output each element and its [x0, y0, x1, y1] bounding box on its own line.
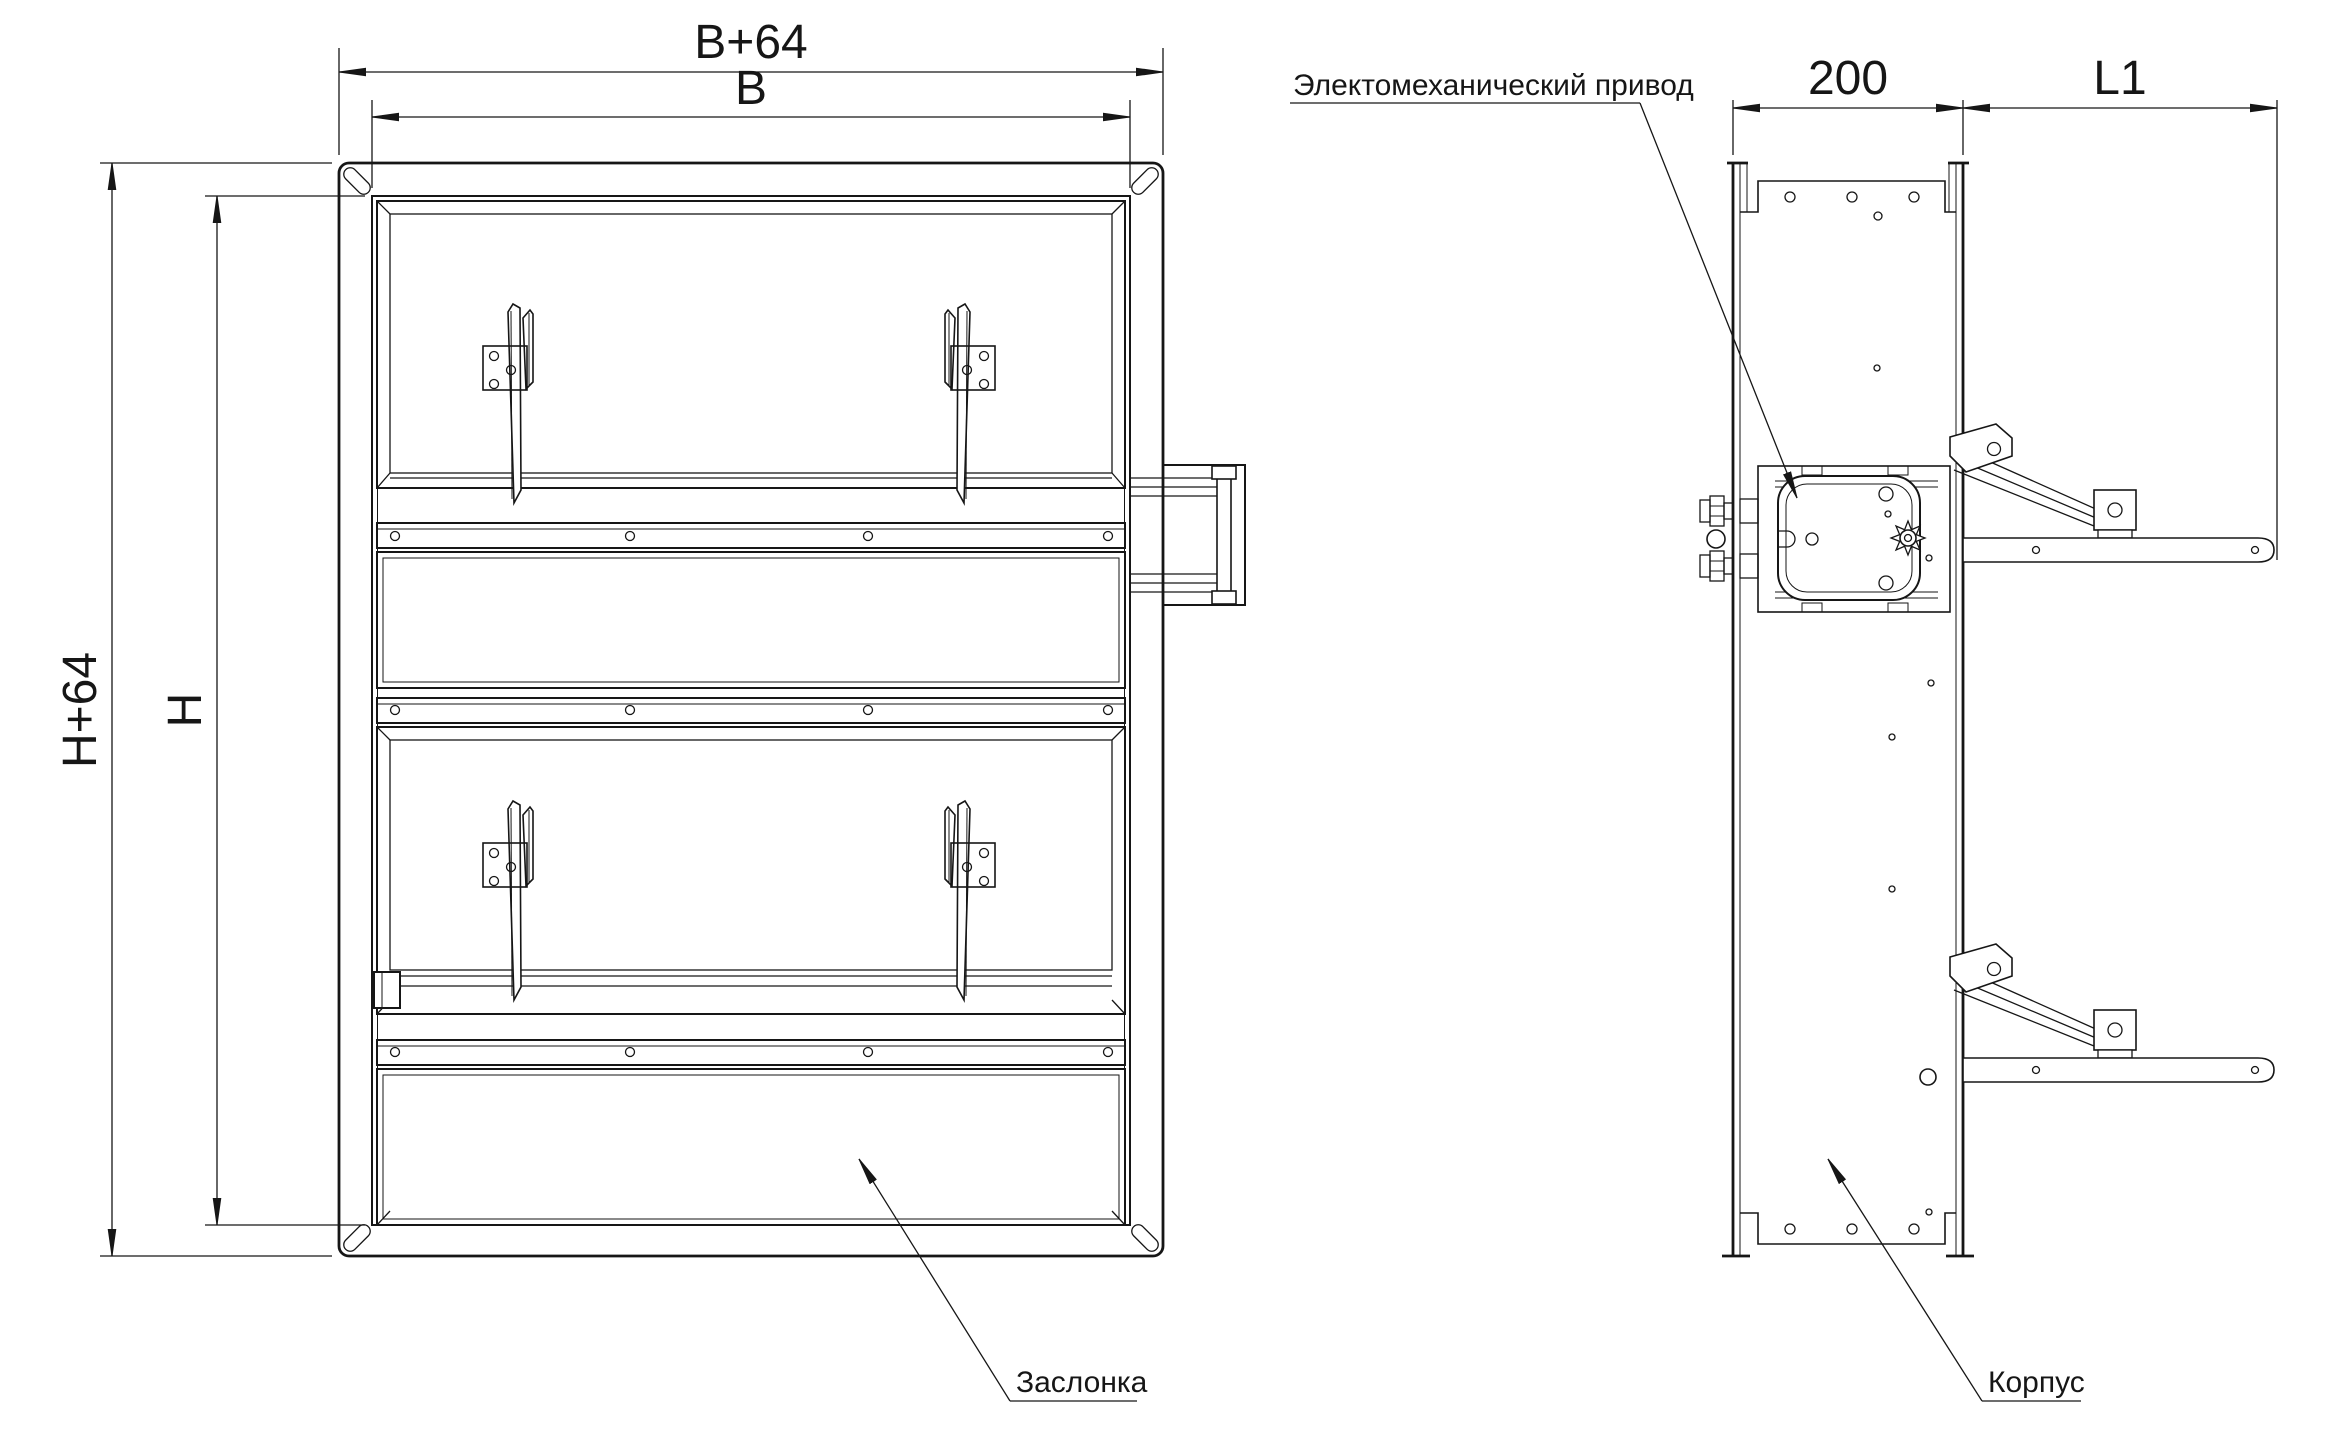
actuator-body	[1778, 476, 1932, 600]
technical-drawing: B+64 B H+64 H Заслонка	[0, 0, 2330, 1432]
bottom-blade-module	[374, 727, 1125, 1014]
blade-axis-rail	[377, 1040, 1125, 1065]
side-casing	[1722, 163, 1974, 1256]
dim-h64-text: H+64	[54, 652, 107, 768]
dim-200-text: 200	[1808, 52, 1888, 105]
dimension-height-inner: H	[159, 196, 365, 1225]
blade-shaft-upper	[1950, 424, 2274, 562]
flange-frame	[339, 163, 1163, 1256]
side-view: 200 L1 Электомеханический привод Корпус	[1290, 52, 2277, 1401]
dim-b-text: B	[735, 62, 767, 115]
front-view: B+64 B H+64 H Заслонка	[54, 16, 1245, 1401]
casing-holes	[1874, 212, 1936, 1215]
dim-h-text: H	[159, 693, 212, 728]
cable-gland-icon	[1700, 496, 1758, 526]
actuator-callout: Электомеханический привод	[1290, 69, 1797, 498]
drawing-sheet: B+64 B H+64 H Заслонка	[0, 0, 2330, 1432]
dimension-protrusion: L1	[1963, 52, 2277, 560]
blade-axis-rail	[377, 523, 1125, 548]
top-blade-module	[377, 201, 1125, 503]
bottom-panel	[377, 1069, 1125, 1225]
corner-slot-icon	[341, 165, 1161, 1254]
dim-l1-text: L1	[2093, 52, 2146, 105]
actuator-linkage-bracket	[1130, 465, 1245, 605]
axle-end-block	[374, 972, 400, 1008]
housing-label: Корпус	[1988, 1366, 2085, 1399]
actuator-label: Электомеханический привод	[1293, 69, 1694, 102]
top-flange-plate	[1740, 181, 1956, 212]
bottom-flange-plate	[1740, 1213, 1956, 1244]
divider-panel	[377, 552, 1125, 688]
blade-axis-rail	[377, 698, 1125, 723]
wall-hole	[1707, 530, 1725, 548]
dimension-depth: 200	[1733, 52, 1963, 155]
dimension-width-inner: B	[372, 62, 1130, 188]
damper-callout: Заслонка	[859, 1159, 1148, 1401]
actuator-assembly	[1700, 466, 1950, 612]
knob-star-icon	[1891, 521, 1925, 555]
damper-label: Заслонка	[1016, 1366, 1148, 1399]
blade-shaft-lower	[1950, 944, 2274, 1082]
cable-gland-icon	[1700, 551, 1758, 581]
